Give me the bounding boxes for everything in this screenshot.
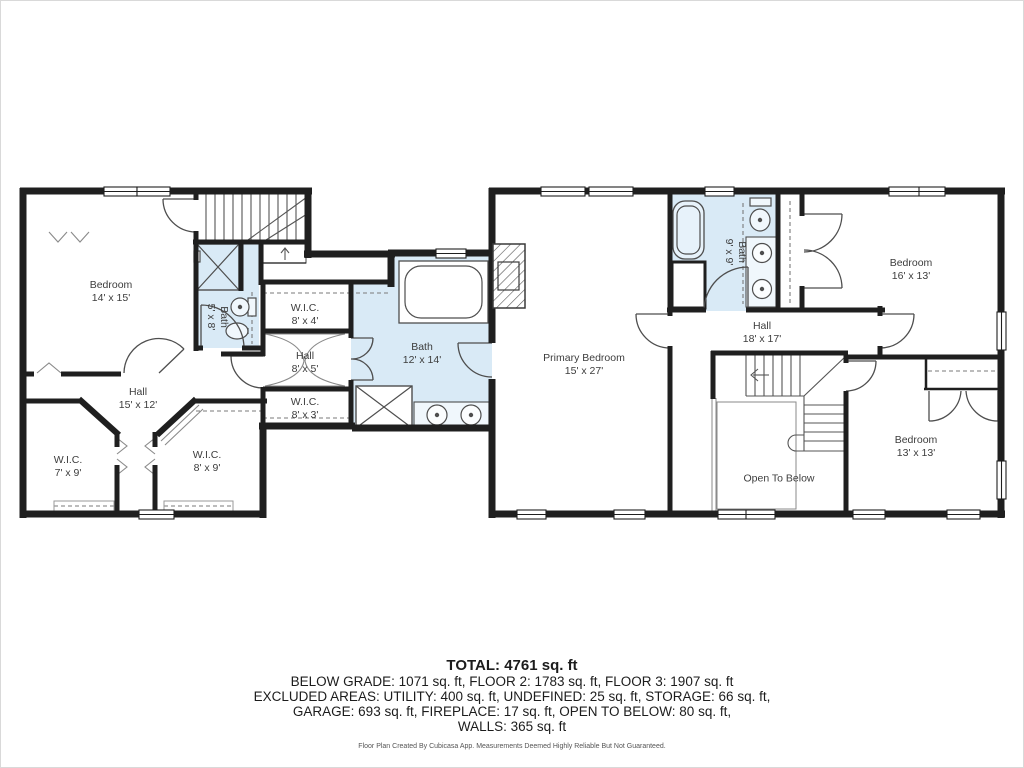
bathtub-9x9 [673,201,704,259]
room-label-primary-bedroom: Primary Bedroom 15' x 27' [543,352,625,378]
room-label-bedroom-16x13: Bedroom 16' x 13' [890,257,933,283]
door-bedroom-13x13 [846,361,876,391]
room-label-hall-15x12: Hall 15' x 12' [119,386,157,412]
room-label-bath-9x9: Bath 9' x 9' [722,239,748,266]
double-vanity-primary-bath [414,402,489,428]
room-label-bedroom-13x13: Bedroom 13' x 13' [895,434,938,460]
total-area-line: TOTAL: 4761 sq. ft [1,657,1023,674]
toilet-small-bath [231,298,256,316]
room-label-bath-12x14: Bath 12' x 14' [403,341,441,367]
door-bedroom-left-top [163,199,196,232]
bathtub-primary-bath [399,261,488,323]
chevron-bedroom-niche [49,232,89,242]
shower-primary-bath [356,386,412,428]
floor-plan-page: Bedroom 14' x 15' Bath 5' x 8' W.I.C. 8'… [0,0,1024,768]
room-label-hall-18x17: Hall 18' x 17' [743,320,781,346]
door-primary-bedroom [636,314,670,348]
walls-thin-closet [924,357,1002,390]
area-summary: TOTAL: 4761 sq. ft BELOW GRADE: 1071 sq.… [1,657,1023,734]
chevron-bedroom-opening [37,363,61,373]
door-bedroom-16x13 [880,314,914,348]
room-label-hall-8x5: Hall 8' x 5' [292,350,319,376]
room-label-wic-7x9: W.I.C. 7' x 9' [54,454,83,480]
fireplace-hatch [493,244,525,308]
room-label-bath-5x8: Bath 5' x 8' [204,304,230,331]
room-label-wic-8x4: W.I.C. 8' x 4' [291,302,320,328]
double-door-bedroom13-closet [929,391,998,421]
double-door-bedroom16-closet [804,214,842,288]
room-label-bedroom-left: Bedroom 14' x 15' [90,279,133,305]
chevron-wic-openings [117,438,155,475]
walls-exterior [20,188,1005,518]
disclaimer-text: Floor Plan Created By Cubicasa App. Meas… [1,743,1023,750]
walls-interior [23,189,1004,517]
room-label-wic-8x3: W.I.C. 8' x 3' [291,396,320,422]
door-bedroom-left-bottom [124,338,184,373]
excluded-areas-line: EXCLUDED AREAS: UTILITY: 400 sq. ft, UND… [1,689,1023,704]
room-label-wic-8x9: W.I.C. 8' x 9' [193,449,222,475]
closet-bath-9x9 [672,262,705,308]
door-hall-closet [231,356,263,388]
toilet-bath-9x9 [750,198,771,231]
floor-plan-drawing [1,1,1024,768]
double-vanity-bath-9x9 [746,237,778,307]
room-label-open-to-below: Open To Below [743,473,814,486]
garage-area-line: GARAGE: 693 sq. ft, FIREPLACE: 17 sq. ft… [1,704,1023,719]
open-to-below-outline [712,398,796,514]
floors-area-line: BELOW GRADE: 1071 sq. ft, FLOOR 2: 1783 … [1,674,1023,689]
walls-area-line: WALLS: 365 sq. ft [1,719,1023,734]
